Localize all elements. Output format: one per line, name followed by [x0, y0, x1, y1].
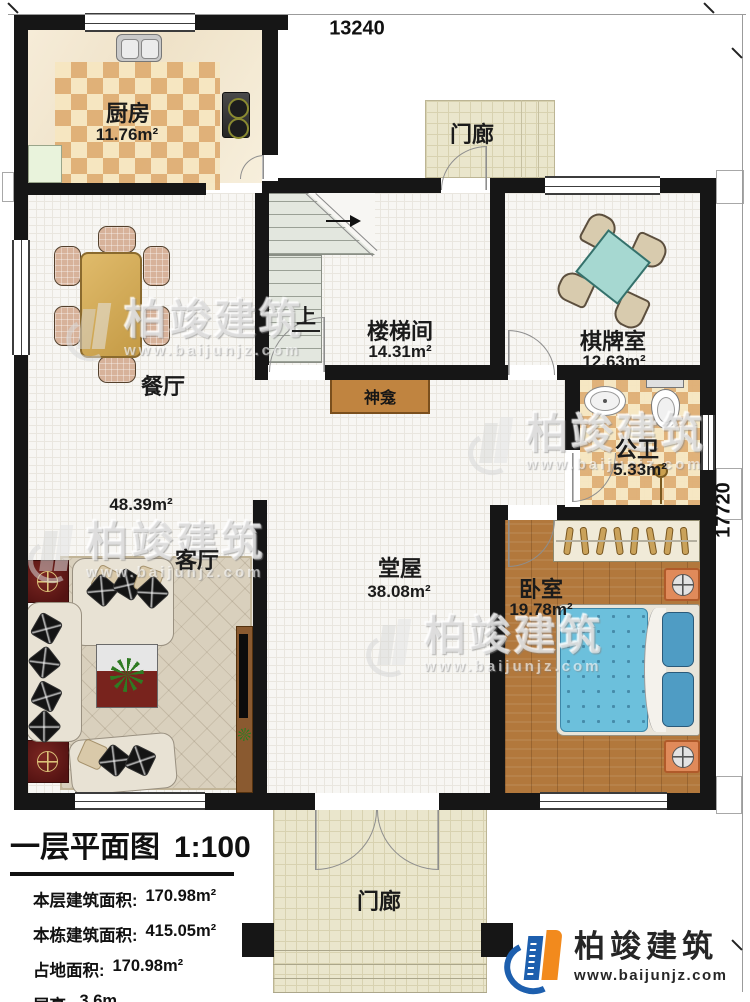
- dining-window: [12, 240, 30, 355]
- kitchen-door-opening: [262, 155, 278, 181]
- plan-title: 一层平面图: [10, 822, 160, 866]
- dimension-tick: [731, 939, 742, 950]
- title-underline: [10, 872, 234, 876]
- brand-website: www.baijunjz.com: [574, 967, 727, 984]
- toilet-seat: [657, 397, 675, 423]
- dimension-line-top: [8, 14, 746, 15]
- wall-bedroom-left: [490, 520, 505, 795]
- sink-drain: [603, 399, 607, 403]
- bedroom-window: [540, 792, 667, 810]
- wall-kitchen-bottom: [14, 183, 206, 195]
- dining-label: 餐厅: [141, 369, 185, 401]
- plan-scale: 1:100: [174, 831, 251, 865]
- potted-plant: [110, 658, 144, 692]
- end-table: [26, 740, 69, 783]
- shrine-cabinet: 神龛: [330, 378, 430, 414]
- hall-label: 堂屋: [378, 551, 422, 583]
- bed-pillow: [662, 672, 694, 727]
- bathroom-window: [701, 415, 715, 470]
- dining-chair: [98, 356, 136, 383]
- drain-pipe: [660, 478, 662, 504]
- bedroom-area: 19.78m²: [509, 600, 572, 620]
- dimension-line-right: [742, 14, 743, 992]
- porch-joint-line: [521, 100, 522, 178]
- living-window: [75, 792, 205, 810]
- stair-cut: [308, 193, 375, 255]
- bathroom-sink: [584, 386, 626, 416]
- info-value: 3.6m: [80, 992, 118, 1002]
- gameroom-window: [545, 176, 660, 195]
- kitchen-stove: [222, 92, 250, 138]
- porch-steps: [273, 938, 487, 993]
- info-label: 层高:: [33, 992, 72, 1002]
- stair-arrow-head: [350, 215, 361, 227]
- info-value: 170.98m²: [146, 887, 217, 911]
- dimension-tick: [731, 47, 742, 58]
- dining-chair: [143, 306, 170, 346]
- shrine-label: 神龛: [364, 384, 396, 408]
- bedroom-door-opening: [508, 505, 557, 520]
- brand-logo-icon: [504, 930, 564, 988]
- dining-chair: [54, 246, 81, 286]
- bed-pillow: [662, 612, 694, 667]
- brand-logo: 柏竣建筑 www.baijunjz.com: [504, 930, 727, 988]
- kitchen-fridge: [28, 145, 62, 183]
- stair-direction-arrow: [326, 220, 352, 222]
- main-entry-opening: [315, 793, 439, 810]
- bathroom-area: 5.33m²: [613, 460, 667, 480]
- dimension-tick: [703, 2, 714, 13]
- stair-up-label: 上: [292, 300, 320, 332]
- hall-area: 38.08m²: [367, 582, 430, 602]
- dining-chair: [98, 226, 136, 253]
- info-label: 占地面积:: [33, 957, 105, 981]
- info-label: 本层建筑面积:: [33, 887, 138, 911]
- bottom-porch-label: 门廊: [357, 884, 401, 916]
- title-block: 一层平面图 1:100 本层建筑面积:170.98m² 本栋建筑面积:415.0…: [10, 822, 251, 1002]
- bed-mattress: [560, 608, 648, 732]
- wall-living-hall: [253, 500, 267, 793]
- living-label: 客厅: [175, 543, 219, 575]
- kitchen-area: 11.76m²: [96, 125, 158, 145]
- table-ornament: [37, 751, 58, 772]
- floor-plan: 13240 17720: [0, 0, 750, 1002]
- end-table: [26, 560, 69, 603]
- nightstand-lamp: [672, 746, 694, 768]
- toilet-tank: [646, 379, 684, 388]
- wall-gameroom-left: [490, 178, 505, 380]
- exterior-sill: [2, 172, 14, 202]
- wall-left: [14, 15, 28, 810]
- wardrobe-rod: [556, 540, 697, 542]
- living-area: 48.39m²: [109, 495, 172, 515]
- table-ornament: [37, 571, 58, 592]
- info-value: 170.98m²: [113, 957, 184, 981]
- tv: [239, 634, 248, 718]
- info-label: 本栋建筑面积:: [33, 922, 138, 946]
- stove-burner: [228, 118, 249, 139]
- info-value: 415.05m²: [146, 922, 217, 946]
- dining-chair: [54, 306, 81, 346]
- dining-table: [80, 252, 142, 358]
- nightstand: [664, 740, 700, 773]
- kitchen-window: [85, 13, 195, 32]
- kitchen-label: 厨房: [106, 96, 150, 128]
- nightstand: [664, 568, 700, 601]
- top-porch-label: 门廊: [450, 117, 494, 149]
- dimension-height-label: 17720: [713, 482, 736, 538]
- gameroom-area: 12.63m²: [582, 352, 645, 372]
- kitchen-sink: [116, 34, 162, 62]
- dining-chair: [143, 246, 170, 286]
- wall-dining-stair: [255, 193, 269, 373]
- nightstand-lamp: [672, 574, 694, 596]
- sink-basin: [141, 39, 159, 59]
- brand-name: 柏竣建筑: [574, 930, 727, 964]
- exterior-sill: [716, 170, 744, 204]
- stove-burner: [228, 98, 249, 119]
- dimension-tick: [7, 2, 18, 13]
- stairwell-area: 14.31m²: [368, 342, 431, 362]
- cabinet-plant: [238, 728, 251, 741]
- dimension-width-label: 13240: [329, 18, 385, 41]
- porch-joint-line: [538, 100, 539, 178]
- sink-basin: [121, 39, 139, 59]
- exterior-sill: [716, 776, 742, 814]
